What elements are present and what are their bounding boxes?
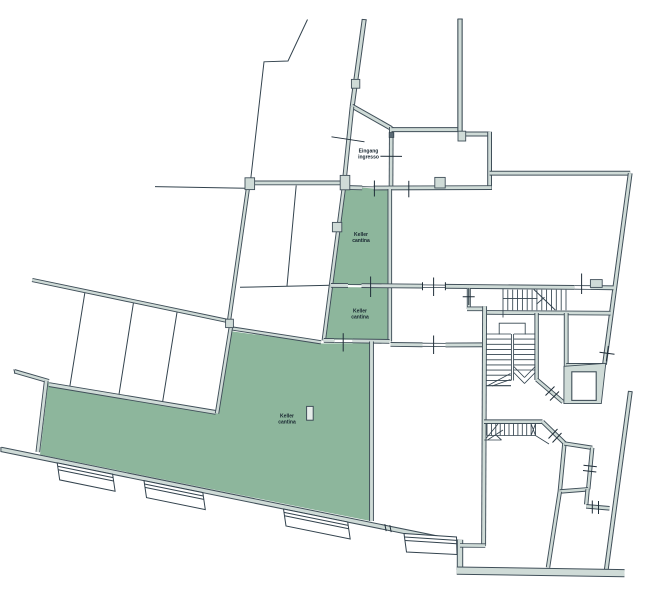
- svg-text:Eingangingresso: Eingangingresso: [358, 148, 379, 160]
- svg-text:Kellercantina: Kellercantina: [278, 414, 296, 426]
- svg-text:Kellercantina: Kellercantina: [352, 232, 370, 244]
- svg-text:Kellercantina: Kellercantina: [351, 309, 369, 321]
